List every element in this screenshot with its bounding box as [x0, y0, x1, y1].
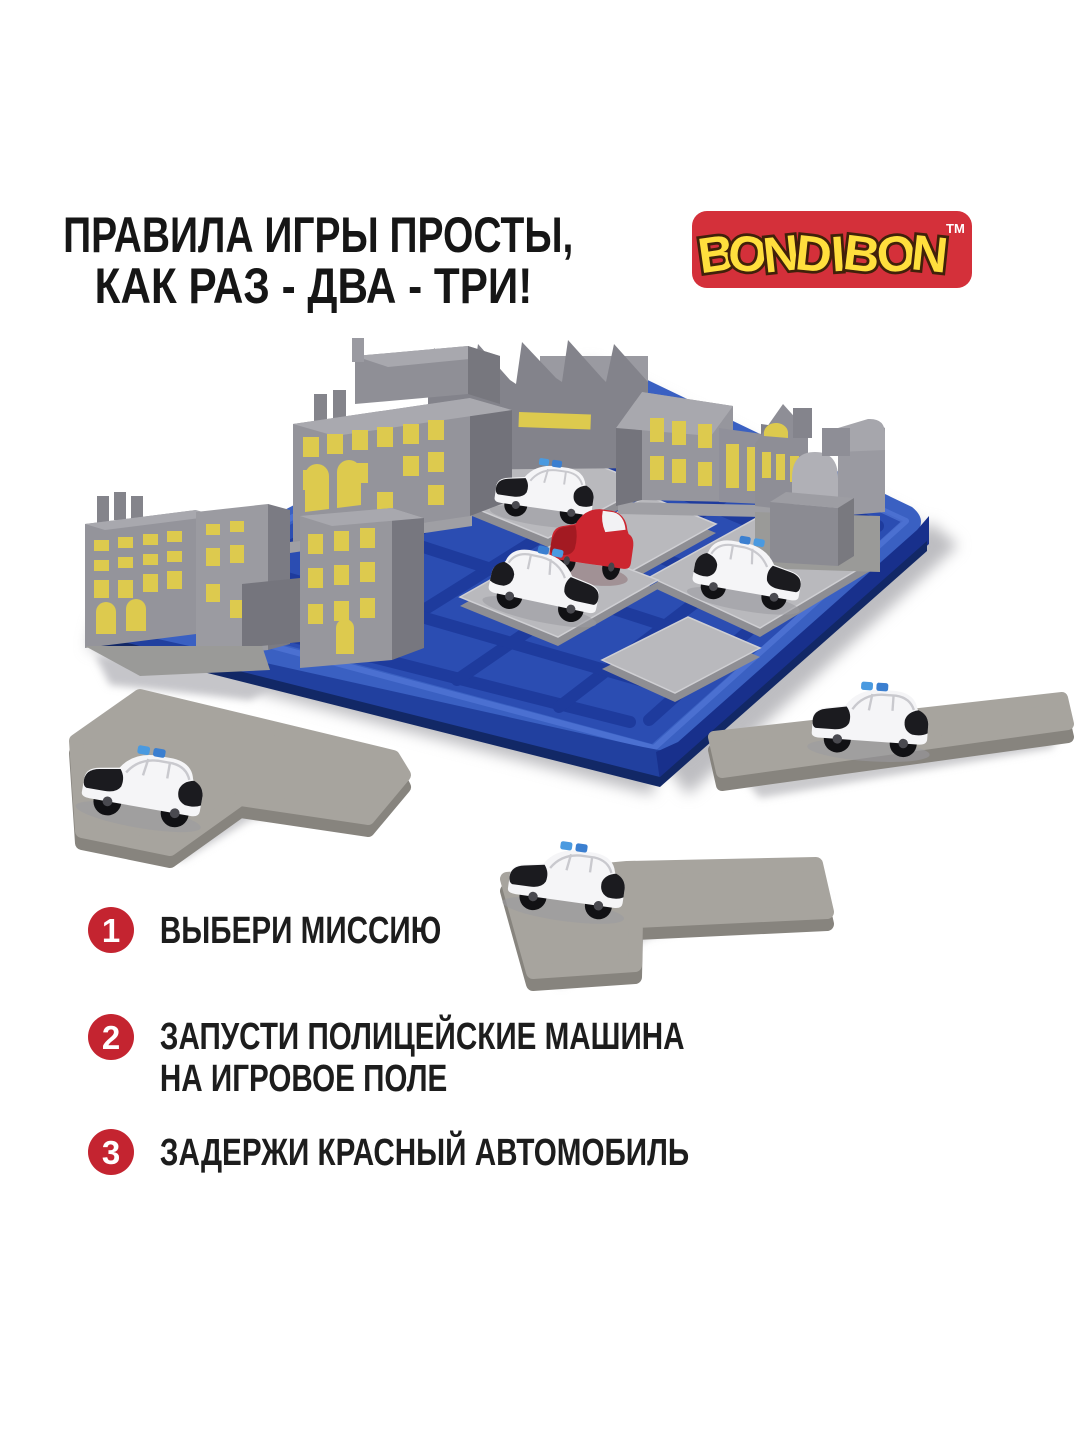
- svg-text:ПРАВИЛА ИГРЫ ПРОСТЫ,: ПРАВИЛА ИГРЫ ПРОСТЫ,: [63, 206, 573, 263]
- svg-text:НА ИГРОВОЕ ПОЛЕ: НА ИГРОВОЕ ПОЛЕ: [160, 1058, 447, 1100]
- svg-text:1: 1: [102, 912, 120, 949]
- svg-text:КАК РАЗ - ДВА - ТРИ!: КАК РАЗ - ДВА - ТРИ!: [95, 258, 533, 314]
- svg-text:TM: TM: [946, 221, 965, 236]
- svg-text:3: 3: [102, 1134, 120, 1171]
- svg-text:D: D: [793, 224, 835, 283]
- svg-text:ЗАДЕРЖИ КРАСНЫЙ АВТОМОБИЛЬ: ЗАДЕРЖИ КРАСНЫЙ АВТОМОБИЛЬ: [160, 1130, 689, 1173]
- svg-text:ВЫБЕРИ МИССИЮ: ВЫБЕРИ МИССИЮ: [160, 910, 441, 952]
- svg-text:2: 2: [102, 1019, 120, 1056]
- svg-text:ЗАПУСТИ ПОЛИЦЕЙСКИЕ МАШИНА: ЗАПУСТИ ПОЛИЦЕЙСКИЕ МАШИНА: [160, 1014, 685, 1057]
- svg-text:N: N: [909, 224, 951, 283]
